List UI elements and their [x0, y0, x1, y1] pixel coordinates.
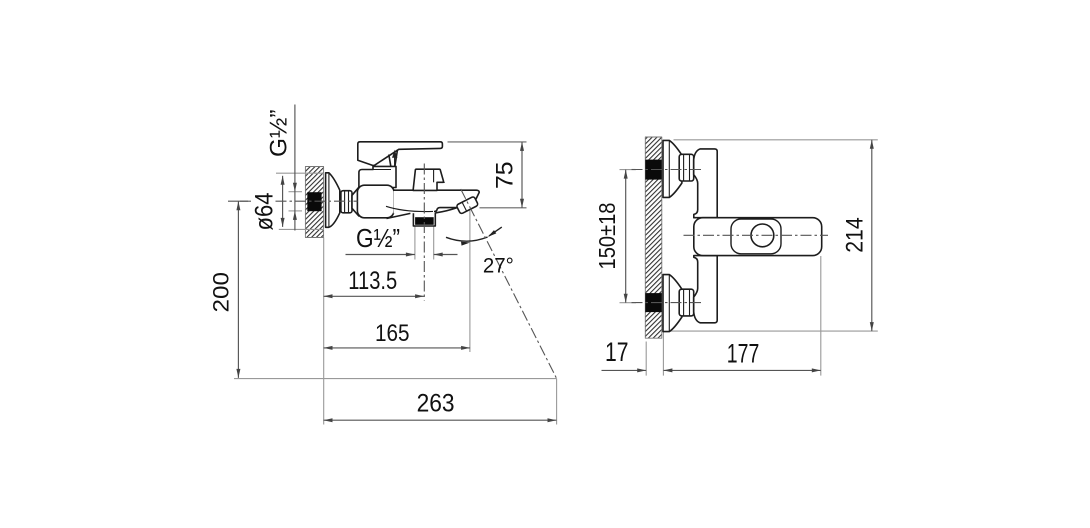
svg-text:G½”: G½” [356, 223, 400, 253]
svg-text:150±18: 150±18 [594, 203, 620, 270]
svg-text:27°: 27° [483, 255, 514, 278]
svg-text:113.5: 113.5 [348, 267, 397, 295]
svg-text:214: 214 [841, 217, 868, 253]
svg-text:200: 200 [209, 272, 234, 313]
svg-text:G½”: G½” [266, 110, 293, 158]
svg-text:177: 177 [727, 339, 760, 369]
svg-text:75: 75 [492, 162, 519, 190]
svg-text:165: 165 [375, 320, 410, 347]
svg-text:17: 17 [605, 337, 629, 367]
svg-text:263: 263 [417, 389, 455, 417]
svg-text:ø64: ø64 [251, 192, 279, 230]
